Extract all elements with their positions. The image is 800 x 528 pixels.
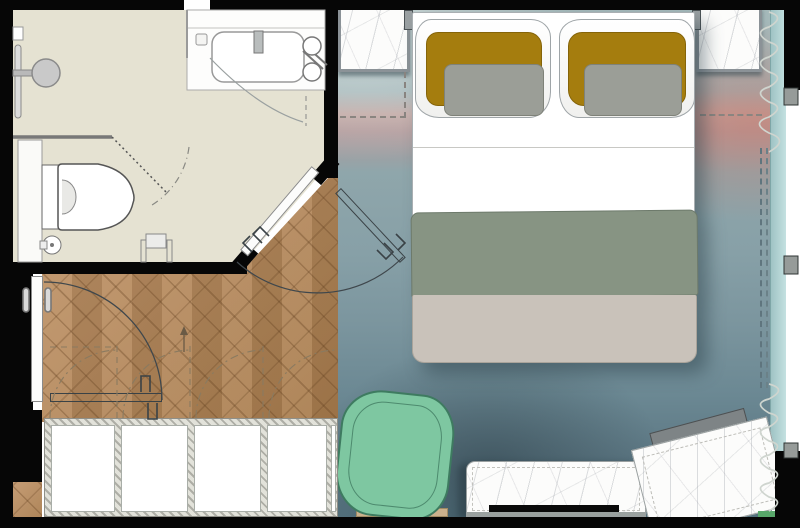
wall-hall-left bbox=[0, 265, 33, 412]
double-bed bbox=[412, 12, 695, 362]
wardrobe-panel-2 bbox=[121, 425, 188, 512]
gray-cushion-right bbox=[584, 64, 682, 116]
floor-plan-canvas bbox=[0, 0, 800, 528]
wall-top bbox=[0, 0, 786, 10]
wardrobe-panel-4 bbox=[267, 425, 327, 512]
wall-corner-bottom-right bbox=[775, 451, 800, 528]
console-base-strip bbox=[467, 512, 645, 516]
wall-bottom bbox=[0, 517, 786, 528]
entry-door-open-outline bbox=[50, 393, 162, 402]
nightstand-dash-outline bbox=[340, 72, 406, 118]
pillow-left bbox=[415, 19, 551, 118]
entry-door-leaf bbox=[31, 276, 43, 402]
mullion-top bbox=[784, 88, 798, 105]
nightstand-right bbox=[696, 6, 762, 72]
window-mullions bbox=[784, 88, 798, 458]
wall-top-gap bbox=[184, 0, 210, 10]
wall-hall-left-block bbox=[0, 410, 42, 482]
lounge-chair-green bbox=[332, 386, 459, 523]
sage-throw bbox=[411, 209, 699, 298]
wall-corner-top-right bbox=[784, 0, 800, 90]
wardrobe bbox=[44, 418, 338, 517]
wood-patch-bottom-left bbox=[13, 482, 42, 517]
pillow-right bbox=[559, 19, 695, 118]
curtain-dash-right bbox=[700, 114, 762, 116]
wardrobe-panel-1 bbox=[51, 425, 115, 512]
wall-bathroom-right bbox=[324, 0, 338, 178]
bathroom-floor bbox=[13, 10, 325, 262]
curtain-track-dash-inner bbox=[766, 148, 768, 388]
mullion-middle bbox=[784, 256, 798, 274]
greige-runner bbox=[412, 295, 697, 363]
sheet-fold-line bbox=[413, 147, 694, 148]
gray-cushion-left bbox=[444, 64, 544, 116]
tv-console bbox=[466, 461, 646, 517]
chair-seat-line bbox=[345, 399, 445, 512]
nightstand-left bbox=[338, 6, 410, 72]
wall-bathroom-bottom bbox=[0, 262, 247, 274]
wardrobe-panel-3 bbox=[194, 425, 261, 512]
curtain-track-dash-outer bbox=[760, 148, 762, 388]
wardrobe-gable bbox=[331, 425, 336, 512]
